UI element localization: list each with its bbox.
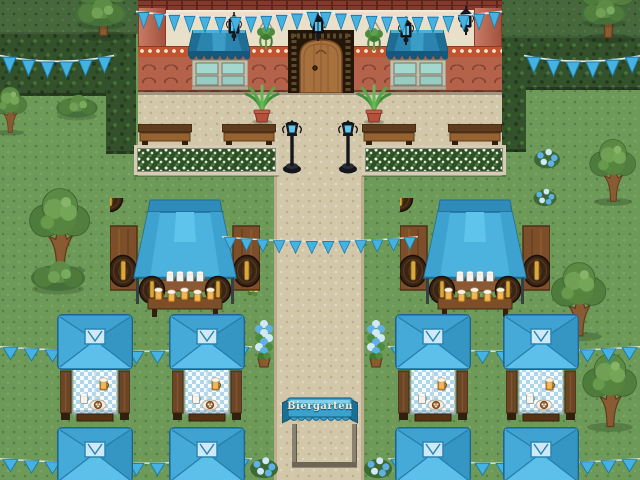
beer-stall-left xyxy=(110,198,260,318)
street-lamp xyxy=(280,120,304,174)
umbrella xyxy=(395,314,471,370)
bunting-facade-right xyxy=(318,8,502,36)
sign-post-left xyxy=(292,424,297,466)
potted-palm xyxy=(356,84,392,124)
biergarten-game-viewport[interactable]: Biergarten xyxy=(0,0,640,480)
flower-bed-left xyxy=(134,145,279,175)
flower-cluster-right xyxy=(532,144,562,170)
bunting-facade-left xyxy=(136,8,320,36)
sign-post-right xyxy=(352,424,357,466)
umbrella xyxy=(169,314,245,370)
picnic-table xyxy=(60,368,130,426)
potted-blue-flowers-left xyxy=(252,318,276,368)
umbrella xyxy=(503,427,579,480)
biergarten-sign-label: Biergarten xyxy=(282,400,358,413)
window-right xyxy=(390,60,446,90)
umbrella xyxy=(57,314,133,370)
potted-blue-flowers-right xyxy=(364,318,388,368)
tree-top-right-canopy xyxy=(578,0,630,28)
hedge-left-column xyxy=(106,32,136,154)
umbrella xyxy=(169,427,245,480)
picnic-table xyxy=(172,368,242,426)
bush-left-mid xyxy=(28,258,88,296)
picnic-table xyxy=(398,368,468,426)
bunting-hedge-left xyxy=(0,52,114,80)
flower-bed-right xyxy=(362,145,506,175)
bush-left-top xyxy=(54,92,100,122)
picnic-table xyxy=(506,368,576,426)
center-path xyxy=(274,176,364,480)
street-lamp xyxy=(336,120,360,174)
umbrella xyxy=(503,314,579,370)
small-tree-left xyxy=(0,84,32,136)
window-left xyxy=(192,60,248,90)
umbrella xyxy=(57,427,133,480)
potted-palm xyxy=(244,84,280,124)
tree-top-left-canopy xyxy=(72,0,130,30)
bunting-between-stalls xyxy=(222,234,418,256)
sign-crossbar xyxy=(292,462,357,467)
beer-stall-right xyxy=(400,198,550,318)
umbrella xyxy=(395,427,471,480)
tree-right-upper xyxy=(584,122,640,220)
bunting-hedge-right xyxy=(524,52,640,80)
hedge-right-column xyxy=(500,36,526,152)
flower-bush-path-right xyxy=(362,452,394,480)
flower-bush-path-left xyxy=(248,452,280,480)
